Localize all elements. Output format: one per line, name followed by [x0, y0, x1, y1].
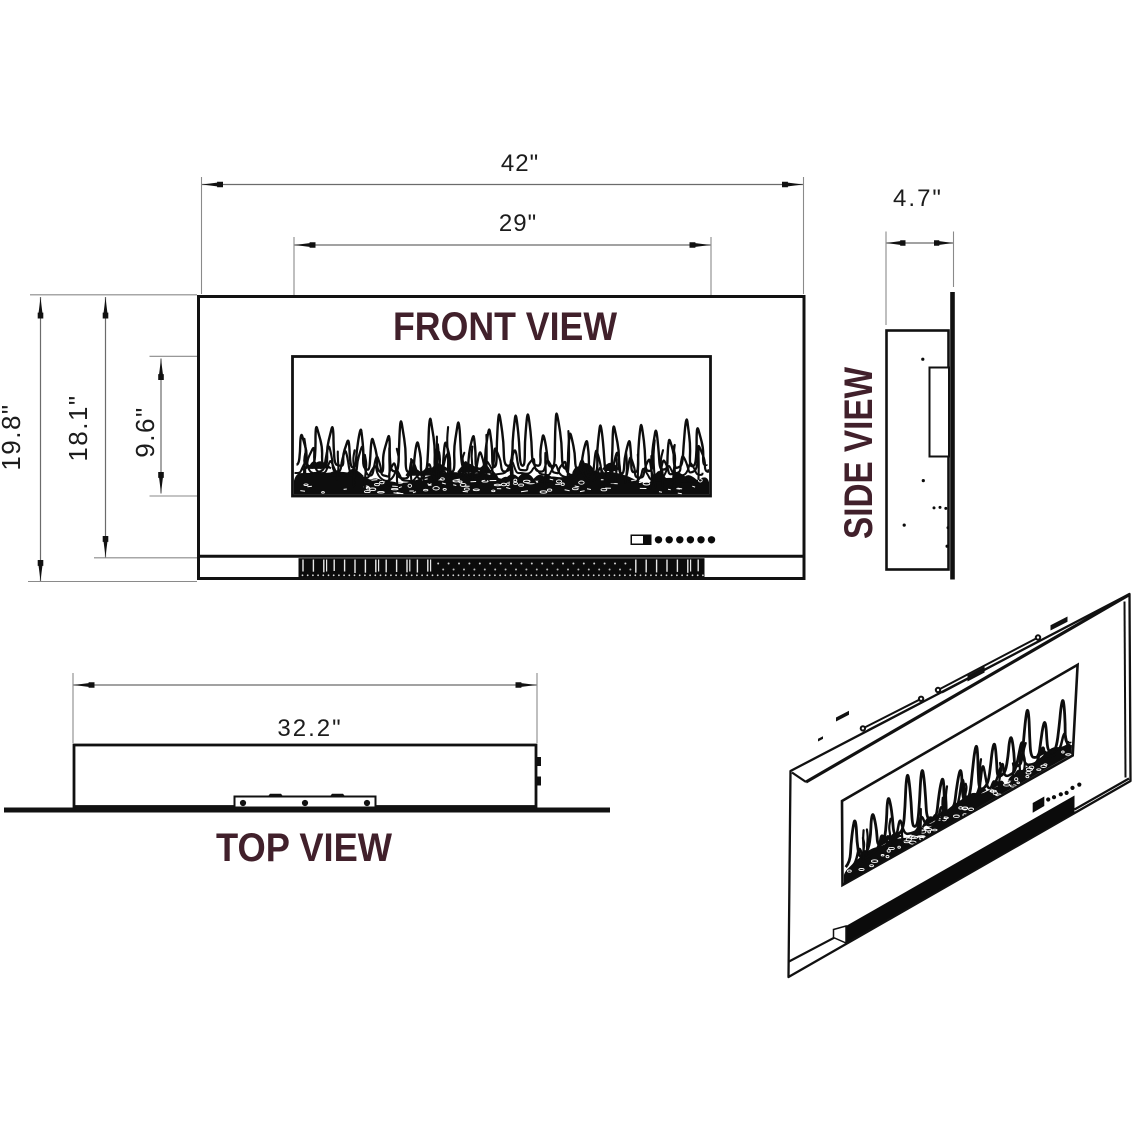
svg-text:32.2": 32.2": [277, 715, 342, 742]
svg-text:19.8": 19.8": [0, 403, 26, 470]
svg-text:FRONT VIEW: FRONT VIEW: [393, 305, 617, 349]
svg-text:SIDE VIEW: SIDE VIEW: [837, 367, 881, 539]
svg-text:4.7": 4.7": [893, 185, 943, 212]
svg-text:18.1": 18.1": [63, 394, 93, 461]
svg-text:TOP VIEW: TOP VIEW: [216, 826, 392, 870]
svg-text:42": 42": [501, 150, 539, 177]
svg-text:9.6": 9.6": [130, 406, 160, 457]
svg-text:29": 29": [499, 210, 537, 237]
